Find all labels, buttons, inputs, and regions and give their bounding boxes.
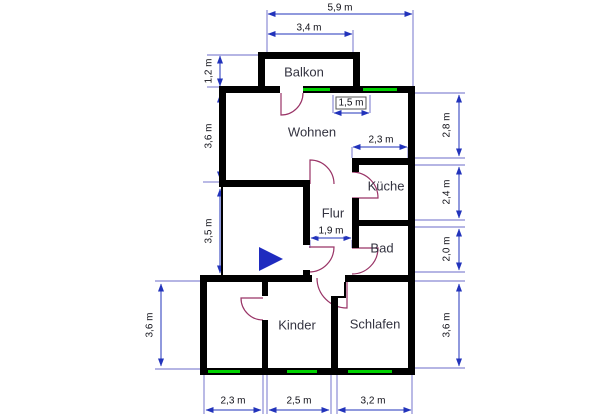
window-bottom-left-room: [208, 368, 240, 375]
dim-label-bottom-left: 2,3 m: [218, 396, 247, 407]
window-kinder: [287, 368, 317, 375]
dim-label-right-schlafen: 3,6 m: [442, 310, 453, 339]
dim-label-left-middle: 3,5 m: [204, 216, 215, 245]
room-label-schlafen: Schlafen: [350, 317, 401, 332]
window-schlafen: [348, 368, 392, 375]
wall-jog-h: [331, 296, 346, 298]
dim-label-right-kueche: 2,4 m: [442, 177, 453, 206]
wall-bottom-a: [200, 368, 208, 375]
door-arc-kinder: [241, 298, 263, 320]
dim-label-balkon-depth: 1,2 m: [204, 56, 215, 85]
dim-label-top-total: 5,9 m: [325, 3, 354, 14]
direction-marker-icon: [259, 247, 283, 271]
wall-bottom-b: [240, 368, 287, 375]
window-wohnen: [363, 86, 397, 93]
wall-bottom-section-top-b: [345, 275, 415, 282]
wall-kueche-top: [352, 158, 415, 165]
wall-bottom-left: [200, 275, 207, 375]
room-label-kinder: Kinder: [278, 318, 316, 333]
wall-flur-left-a: [303, 187, 310, 245]
door-arc-wohnen-flur: [310, 160, 334, 184]
room-label-bad: Bad: [370, 241, 393, 256]
wall-kueche-bad: [352, 220, 415, 226]
wall-bottom-d: [392, 368, 415, 375]
dim-label-kueche-width: 2,3 m: [366, 135, 395, 146]
room-label-balkon: Balkon: [284, 65, 324, 80]
wall-jog-v: [344, 282, 346, 296]
door-arc-flur-left: [309, 247, 334, 272]
room-label-kueche: Küche: [368, 179, 405, 194]
dim-label-right-bad: 2,0 m: [442, 234, 453, 263]
wall-bottom-section-top-a: [200, 275, 312, 282]
wall-top-b: [330, 86, 363, 93]
wall-left-upper: [219, 86, 226, 187]
dim-label-flur-width: 1,9 m: [316, 226, 345, 237]
dim-label-bottom-kinder: 2,5 m: [284, 396, 313, 407]
door-arc-balkon: [281, 93, 303, 115]
dim-label-right-top: 2,8 m: [442, 110, 453, 139]
wall-kinder-left-b: [262, 320, 268, 368]
floorplan: Balkon Wohnen Küche Flur Bad Kinder Schl…: [0, 0, 611, 420]
wall-balkon-top: [258, 52, 360, 59]
wall-bottom-c: [317, 368, 348, 375]
dim-label-window-width: 1,5 m: [335, 97, 366, 110]
wall-wohnen-bottom: [219, 180, 310, 187]
wall-top-a: [219, 86, 280, 93]
dim-label-bottom-schlafen: 3,2 m: [358, 396, 387, 407]
dim-label-balkon-width: 3,4 m: [294, 23, 323, 34]
wall-kueche-left-a: [352, 158, 359, 172]
dim-label-left-wohnen: 3,6 m: [204, 121, 215, 150]
wall-right: [408, 86, 415, 375]
wall-left-middle-thin: [221, 187, 223, 275]
wall-bad-left: [352, 226, 359, 248]
wall-kinder-schlafen: [331, 296, 338, 368]
wall-kinder-left-a: [262, 282, 268, 296]
window-balkon: [303, 86, 330, 93]
room-label-wohnen: Wohnen: [288, 125, 336, 140]
dim-label-left-bottom: 3,6 m: [145, 310, 156, 339]
room-label-flur: Flur: [322, 206, 344, 221]
